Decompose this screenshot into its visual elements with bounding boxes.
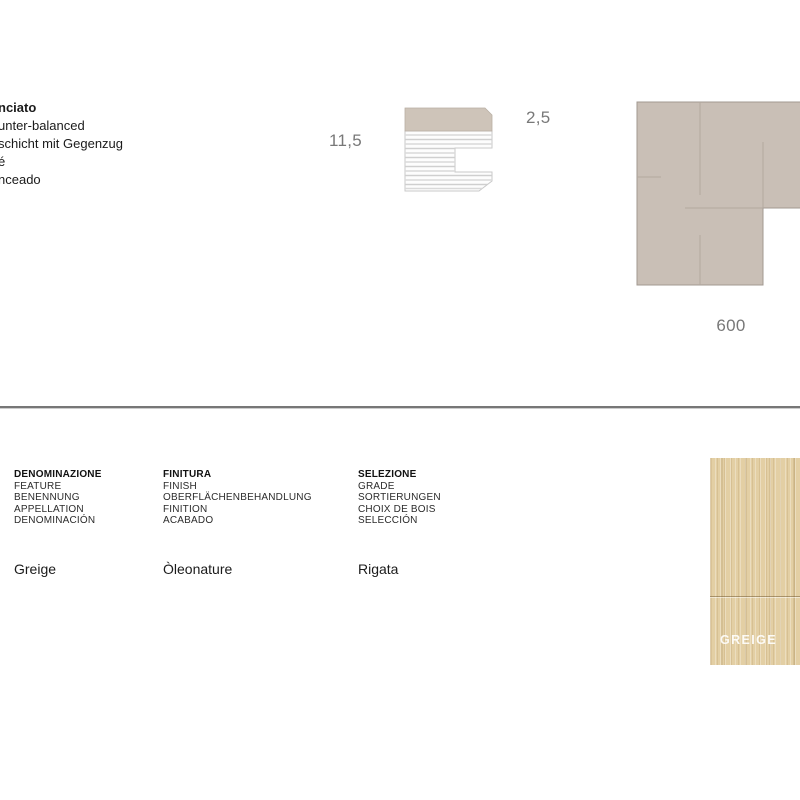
note-line-fr: é (0, 153, 123, 171)
column-header-line: SELECCIÓN (358, 515, 441, 527)
note-line-it: nciato (0, 99, 123, 117)
note-line-en: unter-balanced (0, 117, 123, 135)
catalog-page: nciato unter-balanced schicht mit Gegenz… (0, 0, 800, 800)
column-header-line: SELEZIONE (358, 469, 441, 481)
swatch-plank-seam (710, 596, 800, 597)
column-header-line: DENOMINACIÓN (14, 515, 102, 527)
column-header-line: OBERFLÄCHENBEHANDLUNG (163, 492, 312, 504)
value-finitura: Òleonature (163, 561, 232, 577)
plank-cross-section-diagram (400, 100, 500, 200)
note-line-de: schicht mit Gegenzug (0, 135, 123, 153)
column-header-line: GRADE (358, 481, 441, 493)
column-header-line: FINISH (163, 481, 312, 493)
module-panel-shape (637, 102, 800, 285)
column-header-line: ACABADO (163, 515, 312, 527)
column-header-line: FINITION (163, 504, 312, 516)
spec-column-denominazione: DENOMINAZIONE FEATURE BENENNUNG APPELLAT… (14, 469, 102, 527)
module-size-label: 600 (700, 316, 762, 336)
value-denominazione: Greige (14, 561, 56, 577)
column-header-line: SORTIERUNGEN (358, 492, 441, 504)
spec-column-selezione: SELEZIONE GRADE SORTIERUNGEN CHOIX DE BO… (358, 469, 441, 527)
column-header-line: BENENNUNG (14, 492, 102, 504)
value-selezione: Rigata (358, 561, 398, 577)
column-header-line: FINITURA (163, 469, 312, 481)
module-pattern-diagram (630, 95, 800, 295)
spec-column-finitura: FINITURA FINISH OBERFLÄCHENBEHANDLUNG FI… (163, 469, 312, 527)
column-header-line: DENOMINAZIONE (14, 469, 102, 481)
column-header-line: CHOIX DE BOIS (358, 504, 441, 516)
note-line-es: nceado (0, 171, 123, 189)
construction-note: nciato unter-balanced schicht mit Gegenz… (0, 99, 123, 189)
section-divider (0, 406, 800, 409)
swatch-color-label: GREIGE (720, 633, 777, 647)
top-layer-thickness-label: 2,5 (526, 108, 551, 128)
total-thickness-label: 11,5 (329, 131, 362, 151)
column-header-line: FEATURE (14, 481, 102, 493)
column-header-line: APPELLATION (14, 504, 102, 516)
divider-light-line (0, 408, 800, 409)
wood-swatch-greige: GREIGE (710, 458, 800, 665)
surface-layer-shape (405, 108, 492, 131)
